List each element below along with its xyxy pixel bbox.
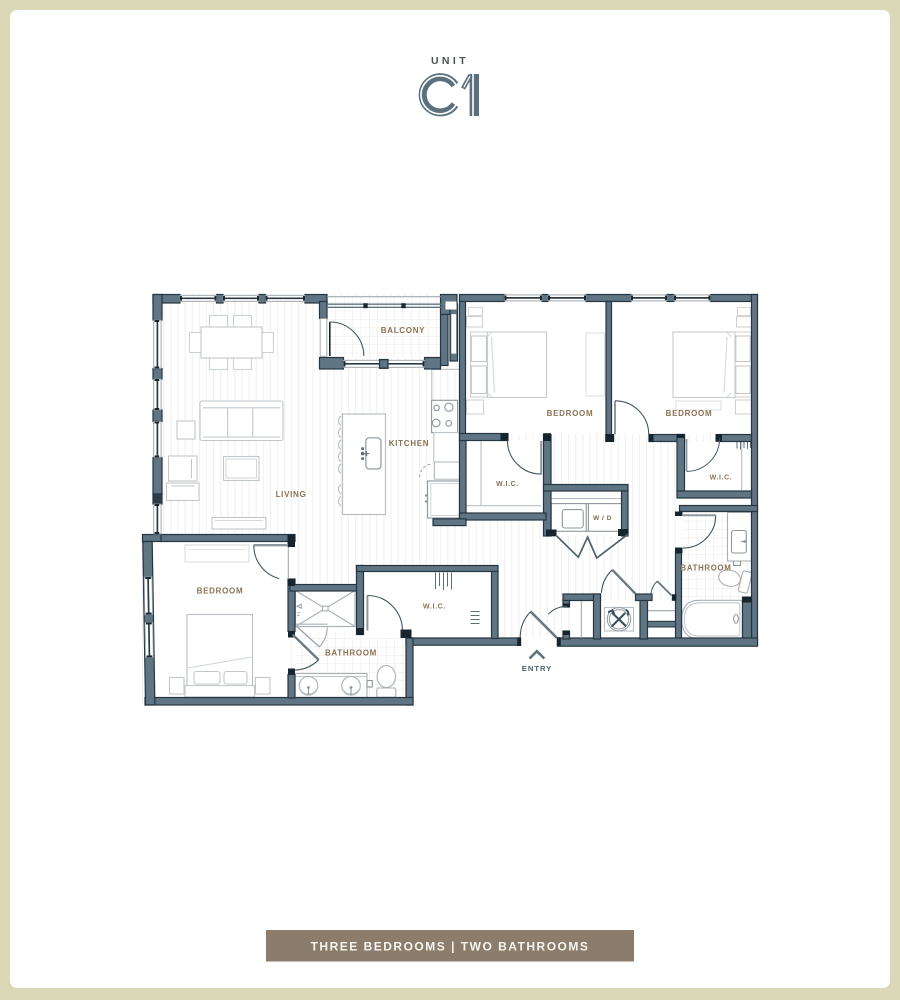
svg-text:LIVING: LIVING	[276, 490, 307, 499]
svg-text:W.I.C.: W.I.C.	[710, 475, 733, 482]
svg-text:BALCONY: BALCONY	[381, 326, 425, 335]
svg-text:UNIT: UNIT	[431, 55, 469, 67]
svg-text:W.I.C.: W.I.C.	[423, 602, 446, 611]
svg-text:BEDROOM: BEDROOM	[197, 587, 244, 596]
svg-text:THREE BEDROOMS | TWO BATHROOMS: THREE BEDROOMS | TWO BATHROOMS	[311, 940, 590, 954]
svg-text:KITCHEN: KITCHEN	[389, 439, 429, 448]
svg-text:BATHROOM: BATHROOM	[681, 564, 732, 573]
svg-text:ENTRY: ENTRY	[522, 664, 552, 673]
svg-text:BEDROOM: BEDROOM	[666, 409, 713, 418]
svg-text:W.I.C.: W.I.C.	[496, 481, 519, 488]
svg-text:W / D: W / D	[593, 515, 612, 522]
svg-text:BEDROOM: BEDROOM	[547, 409, 594, 418]
svg-text:BATHROOM: BATHROOM	[325, 649, 377, 658]
